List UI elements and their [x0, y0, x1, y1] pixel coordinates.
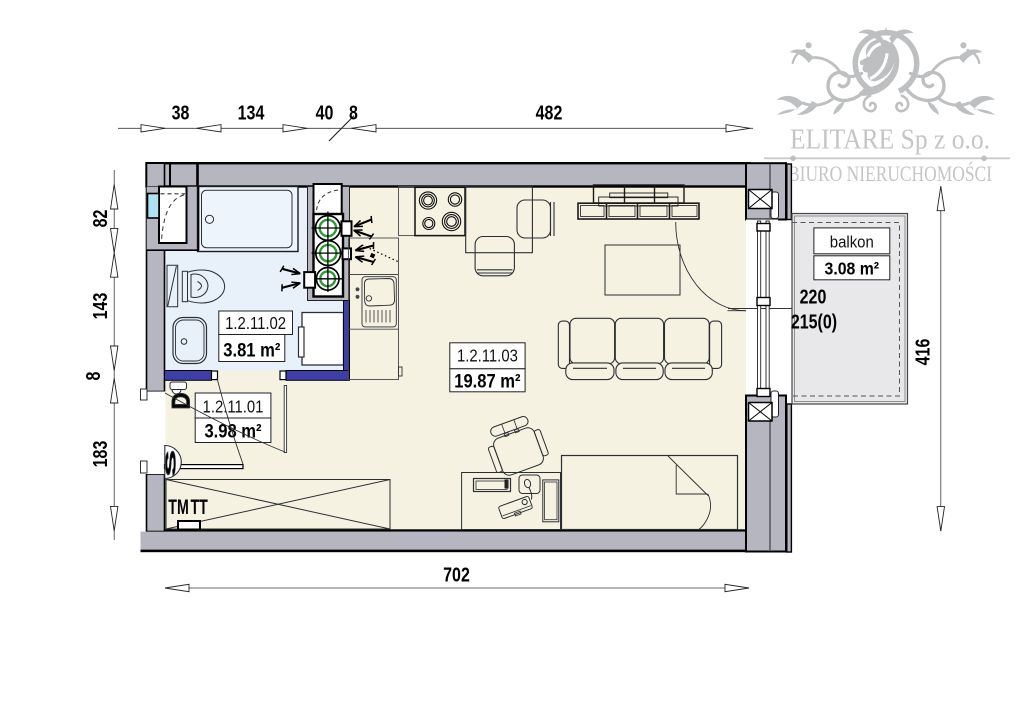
svg-text:40: 40 [316, 101, 334, 124]
svg-text:134: 134 [238, 101, 265, 124]
svg-text:82: 82 [88, 210, 111, 228]
svg-text:BIURO NIERUCHOMOŚCI: BIURO NIERUCHOMOŚCI [788, 161, 992, 186]
svg-text:3.08 m²: 3.08 m² [825, 259, 880, 279]
svg-text:S: S [163, 450, 179, 477]
svg-text:TM: TM [168, 495, 188, 519]
svg-text:143: 143 [88, 293, 111, 320]
svg-text:3.81 m²: 3.81 m² [223, 339, 280, 361]
svg-text:8: 8 [81, 372, 104, 381]
svg-text:ELITARE Sp z o.o.: ELITARE Sp z o.o. [790, 125, 990, 156]
svg-text:183: 183 [88, 441, 111, 468]
svg-text:1.2.11.01: 1.2.11.01 [203, 397, 264, 416]
svg-text:38: 38 [172, 101, 190, 124]
svg-text:482: 482 [536, 101, 563, 124]
svg-text:1.2.11.02: 1.2.11.02 [225, 314, 286, 333]
svg-text:TT: TT [191, 495, 208, 519]
svg-text:8: 8 [349, 101, 358, 124]
svg-text:balkon: balkon [830, 234, 874, 252]
svg-text:215(0): 215(0) [791, 310, 837, 333]
svg-text:19.87 m²: 19.87 m² [454, 370, 520, 392]
svg-text:702: 702 [443, 563, 470, 586]
svg-text:416: 416 [911, 339, 934, 366]
svg-text:220: 220 [800, 285, 827, 308]
svg-text:1.2.11.03: 1.2.11.03 [457, 346, 518, 365]
svg-text:D: D [168, 392, 196, 409]
